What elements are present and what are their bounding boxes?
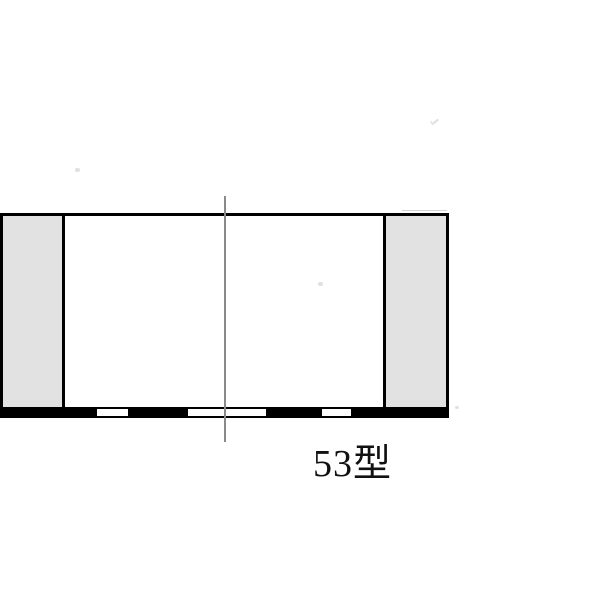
faint-tick-artifact — [430, 118, 439, 126]
base-slot-window — [97, 409, 128, 416]
right-end-panel — [386, 216, 446, 407]
scan-speck — [75, 168, 80, 172]
scan-speck — [318, 282, 323, 286]
body-right-border-line — [446, 213, 449, 418]
left-end-panel — [3, 216, 62, 407]
model-label: 53型 — [313, 444, 392, 486]
center-axis-line — [224, 196, 226, 442]
technical-drawing-canvas: 53型 — [0, 0, 600, 600]
scan-speck — [455, 406, 459, 409]
faint-edge-ghost-line — [402, 210, 447, 211]
base-slot-window — [188, 409, 266, 416]
left-panel-divider-line — [62, 213, 65, 409]
base-slot-window — [322, 409, 351, 416]
